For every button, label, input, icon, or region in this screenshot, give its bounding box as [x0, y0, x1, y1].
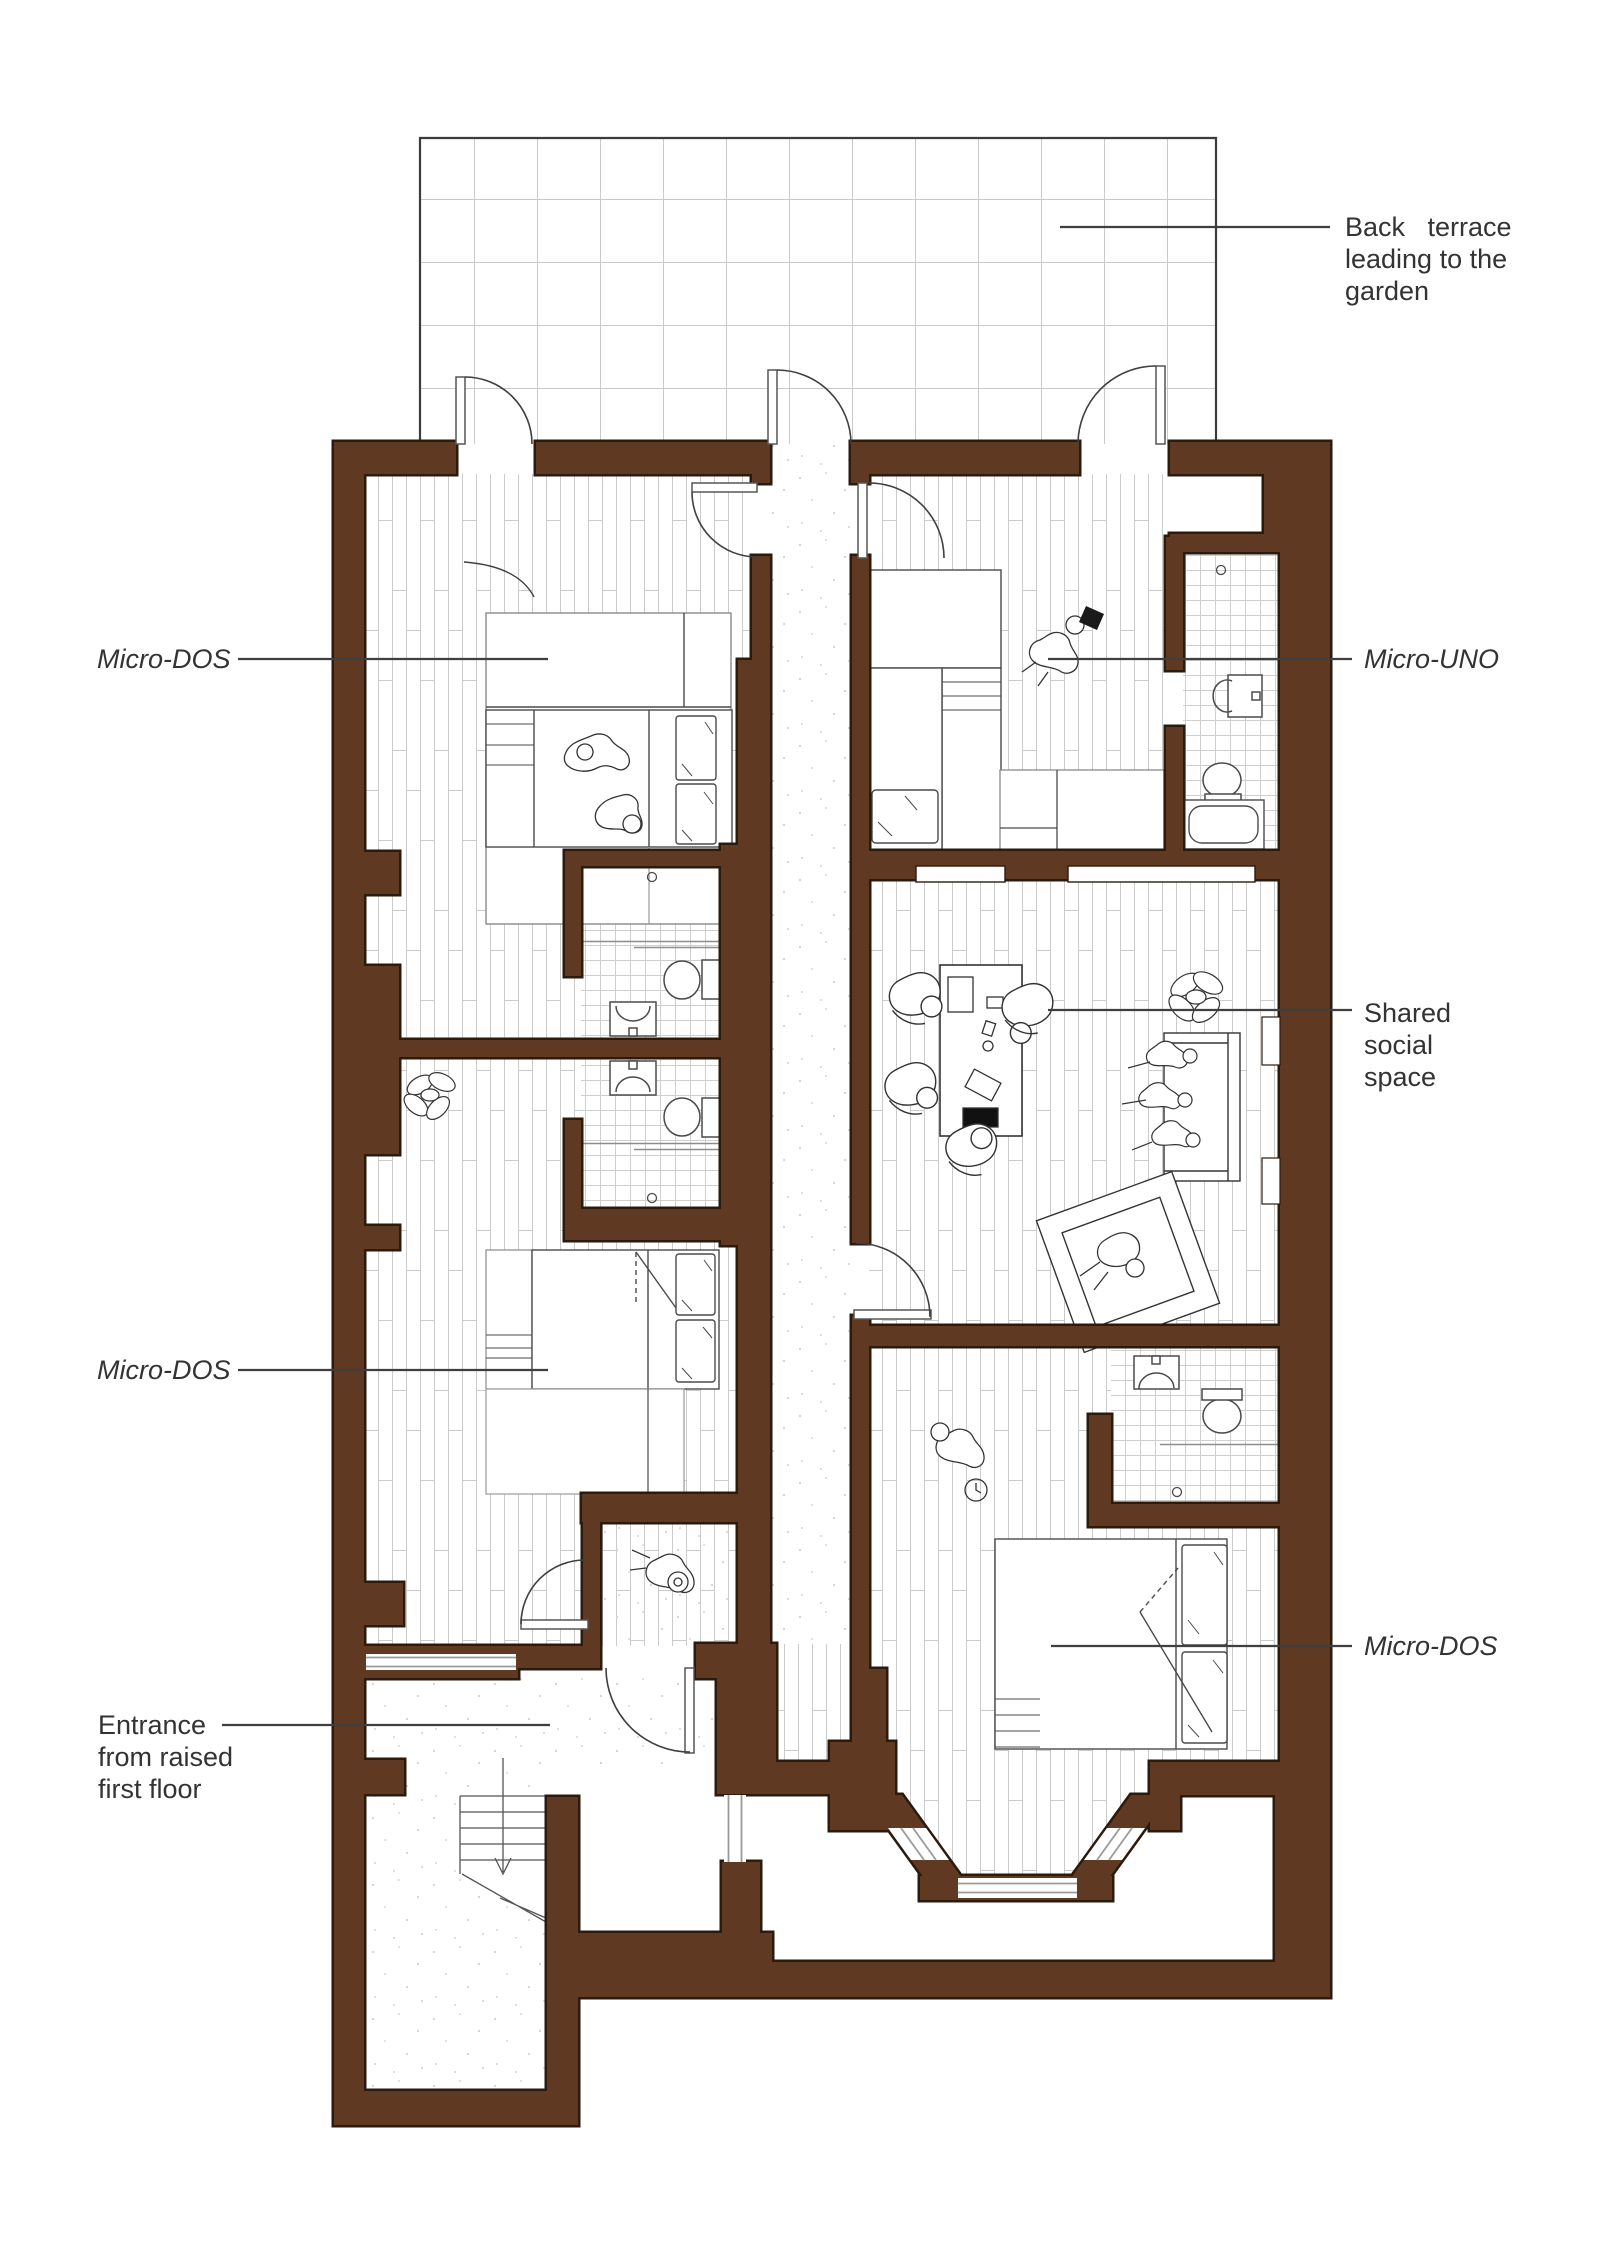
svg-text:garden: garden	[1345, 276, 1429, 306]
svg-text:leading to the: leading to the	[1345, 244, 1507, 274]
svg-text:Micro-UNO: Micro-UNO	[1364, 644, 1499, 674]
svg-text:Micro-DOS: Micro-DOS	[1364, 1631, 1498, 1661]
svg-text:first floor: first floor	[98, 1774, 202, 1804]
svg-text:social: social	[1364, 1030, 1433, 1060]
svg-text:Shared: Shared	[1364, 998, 1451, 1028]
svg-text:Micro-DOS: Micro-DOS	[97, 644, 231, 674]
svg-text:Entrance: Entrance	[98, 1710, 206, 1740]
svg-text:space: space	[1364, 1062, 1436, 1092]
svg-text:from raised: from raised	[98, 1742, 233, 1772]
svg-text:Micro-DOS: Micro-DOS	[97, 1355, 231, 1385]
svg-text:Back terrace: Back terrace	[1345, 212, 1512, 242]
